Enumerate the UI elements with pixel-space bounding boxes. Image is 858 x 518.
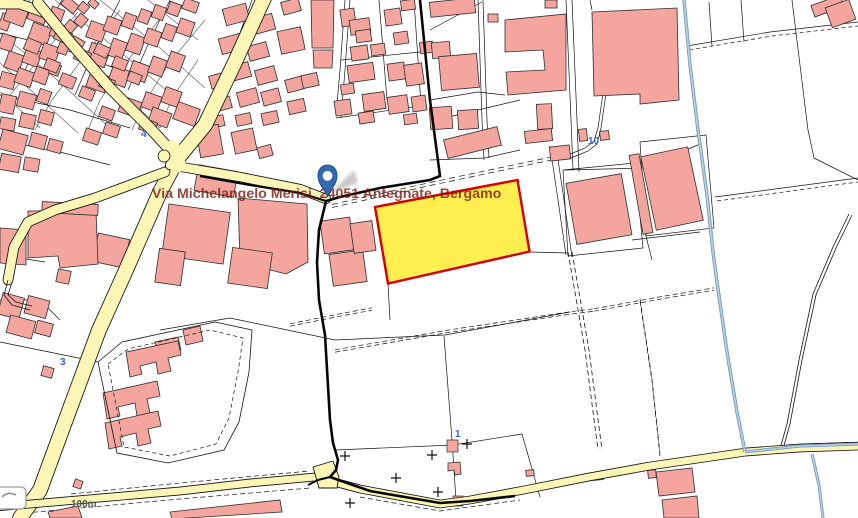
svg-text:1: 1 — [455, 429, 461, 440]
svg-text:4: 4 — [141, 129, 147, 140]
svg-text:100m: 100m — [71, 499, 97, 510]
svg-text:3: 3 — [60, 357, 66, 368]
svg-text:10: 10 — [588, 136, 600, 147]
